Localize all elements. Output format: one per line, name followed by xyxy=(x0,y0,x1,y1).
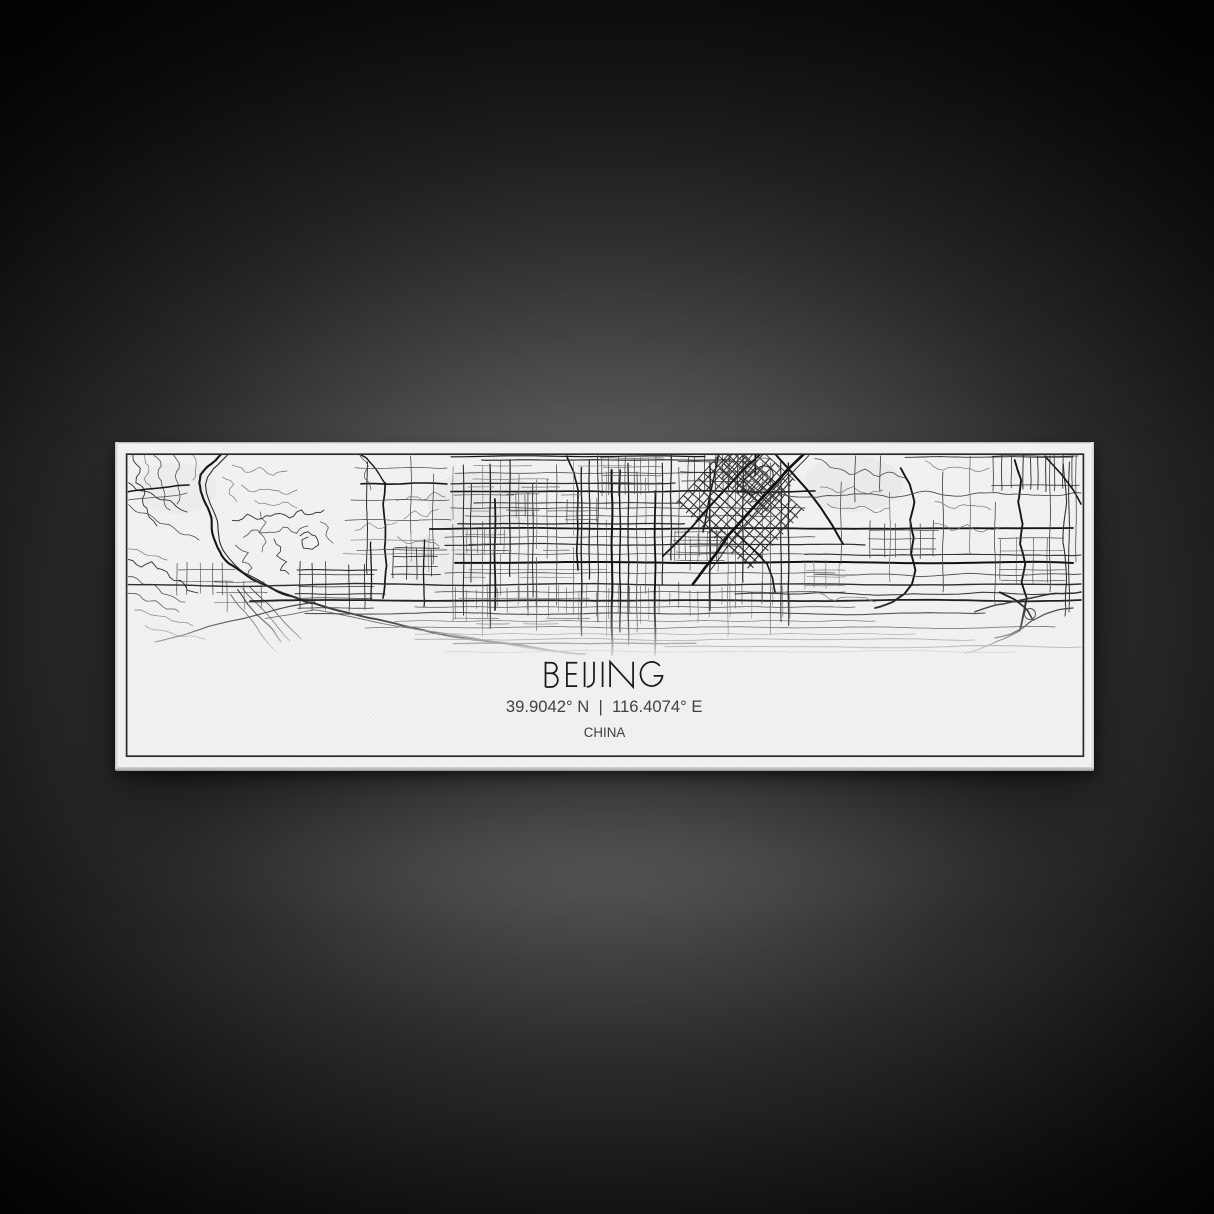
svg-text:39.9042° N | 116.4074° E: 39.9042° N | 116.4074° E xyxy=(506,698,703,716)
svg-text:CHINA: CHINA xyxy=(584,725,626,740)
